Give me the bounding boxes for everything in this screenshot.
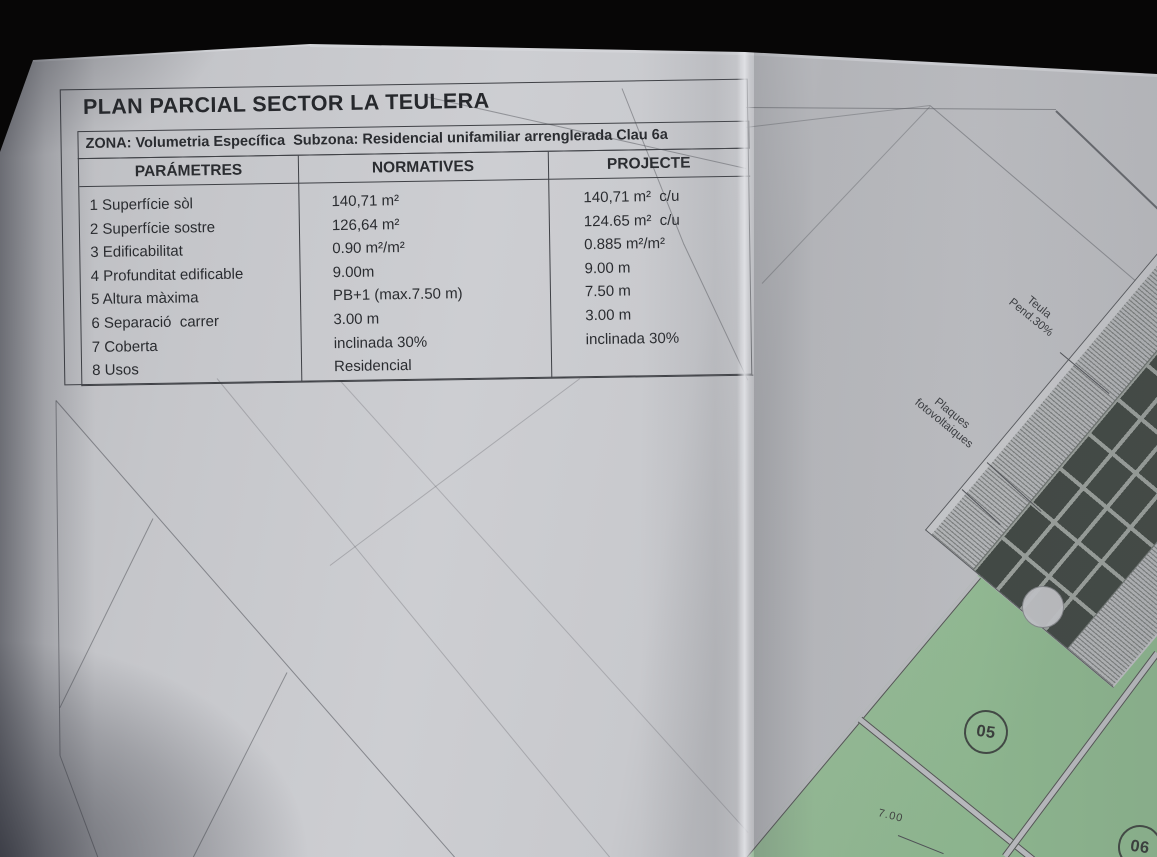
plan-line	[330, 378, 580, 566]
header-projecte: PROJECTE	[548, 149, 750, 179]
plan-line	[340, 380, 749, 833]
parcel-circle-05: 05	[961, 707, 1011, 757]
header-normatives: NORMATIVES	[298, 152, 548, 183]
street-double-line	[858, 717, 1063, 857]
plan-line	[762, 106, 931, 284]
paper-sheet: 05 06 7.00 Teula Pend.30% Plaques fotovo…	[0, 0, 1157, 857]
plan-line	[60, 755, 99, 857]
parameters-box: PARÁMETRES NORMATIVES PROJECTE 1 Superfí…	[78, 148, 753, 386]
paper-top-edge	[745, 51, 1157, 77]
document-title: PLAN PARCIAL SECTOR LA TEULERA	[83, 89, 490, 120]
plan-parcel-table: PLAN PARCIAL SECTOR LA TEULERA ZONA: Vol…	[60, 79, 753, 386]
header-parametres: PARÁMETRES	[79, 156, 298, 186]
panels-annotation: Plaques fotovoltaiques	[912, 387, 984, 452]
parcel-number: 06	[1129, 836, 1151, 857]
plan-line	[192, 672, 287, 857]
plan-line	[56, 400, 61, 755]
parcel-circle-06: 06	[1115, 822, 1157, 857]
photographed-plan-document: 05 06 7.00 Teula Pend.30% Plaques fotovo…	[0, 0, 1157, 857]
plan-line	[59, 518, 153, 708]
dimension-leader-line	[898, 835, 944, 854]
parcel-number: 05	[975, 721, 997, 743]
tree-circle	[1022, 586, 1064, 628]
plan-line	[56, 400, 456, 857]
roof-annotation: Teula Pend.30%	[1006, 286, 1064, 340]
table-rows: 1 Superfície sòl140,71 m²140,71 m² c/u 2…	[79, 177, 753, 383]
paper-top-edge	[33, 42, 311, 62]
plan-line	[930, 105, 1156, 298]
plan-line	[217, 378, 611, 857]
dimension-label: 7.00	[877, 807, 905, 825]
paper-top-edge	[310, 43, 746, 55]
street-double-line	[739, 574, 981, 857]
plot-boundary-line	[1055, 110, 1157, 212]
